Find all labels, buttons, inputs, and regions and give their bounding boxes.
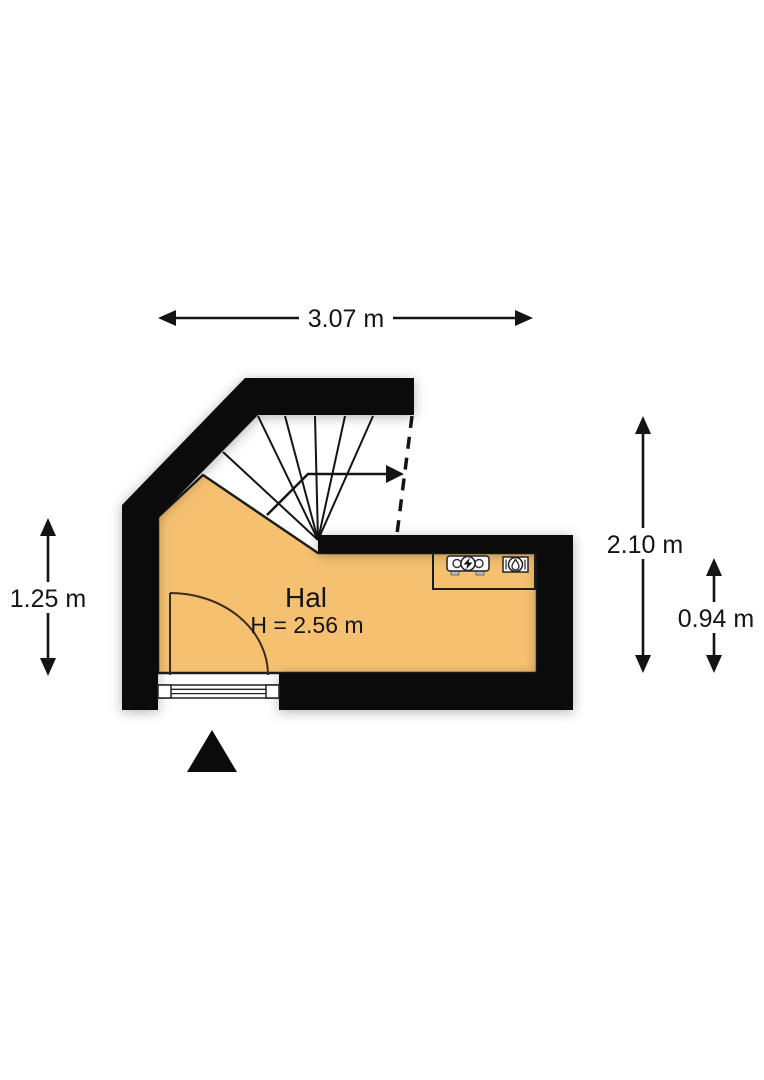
dimension-right-lower-height: 0.94 m	[676, 558, 756, 673]
room-name-label: Hal	[285, 582, 327, 613]
floor-plan: 3.07 m 2.10 m 0.94 m 1.25 m Hal H = 2.56…	[0, 0, 764, 1080]
entrance-threshold	[158, 685, 279, 698]
dimension-top-width: 3.07 m	[158, 302, 533, 333]
stair-tread	[315, 416, 318, 540]
dimension-left-height: 1.25 m	[10, 518, 87, 676]
water-meter-icon	[503, 557, 528, 572]
dimension-right-lower-height-label: 0.94 m	[678, 605, 754, 633]
dimension-left-height-label: 1.25 m	[10, 585, 86, 613]
stairs-direction-arrow-icon	[267, 465, 404, 515]
entrance-marker-icon	[187, 730, 237, 772]
dimension-top-width-label: 3.07 m	[308, 305, 384, 333]
stair-tread	[285, 416, 318, 540]
room-height-label: H = 2.56 m	[250, 612, 363, 638]
dimension-right-total-height-label: 2.10 m	[607, 531, 683, 559]
stair-tread	[318, 416, 373, 540]
dimension-right-total-height: 2.10 m	[605, 416, 685, 673]
stair-tread	[318, 416, 345, 540]
